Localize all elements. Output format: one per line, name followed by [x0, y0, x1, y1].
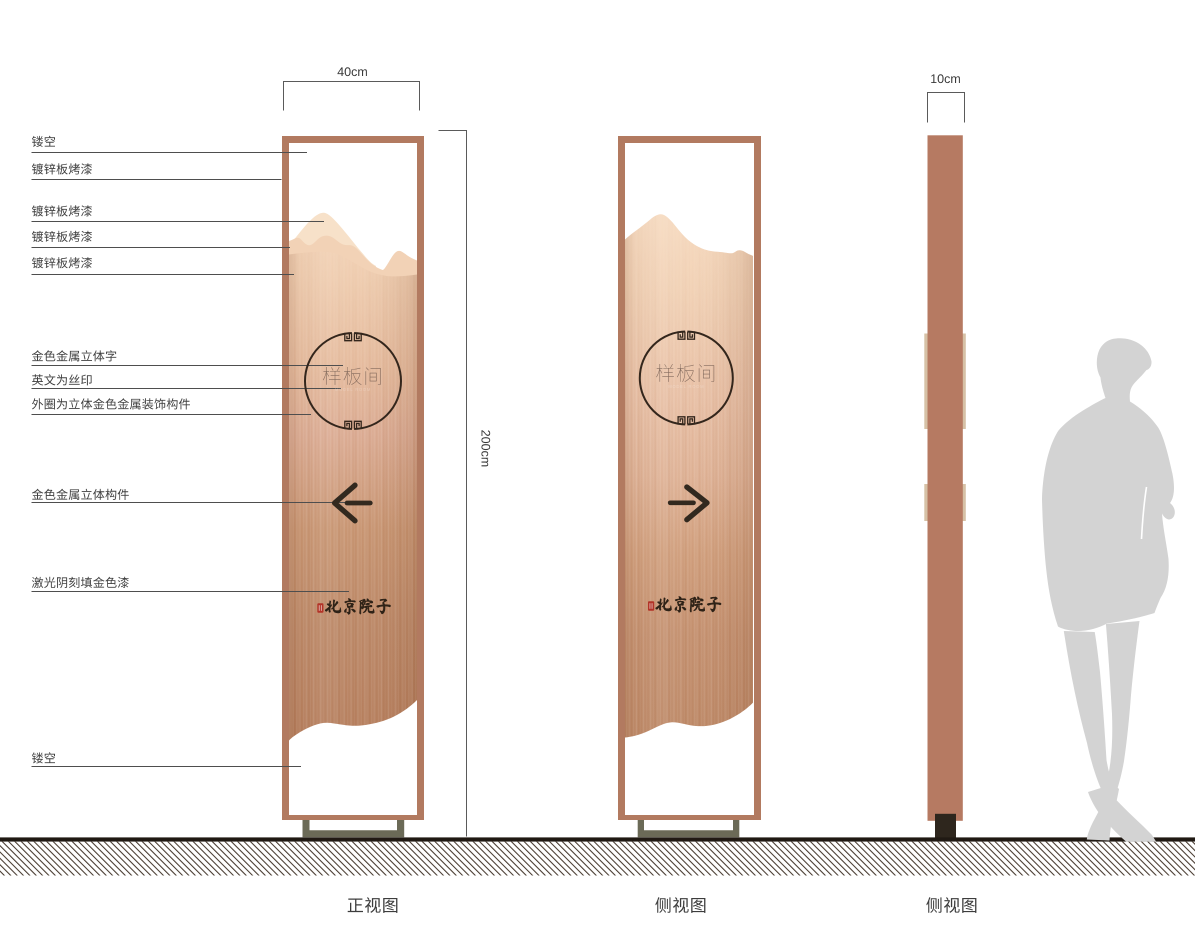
svg-text:MODEL ROOM: MODEL ROOM	[335, 387, 371, 392]
svg-text:MODEL ROOM: MODEL ROOM	[668, 384, 704, 389]
